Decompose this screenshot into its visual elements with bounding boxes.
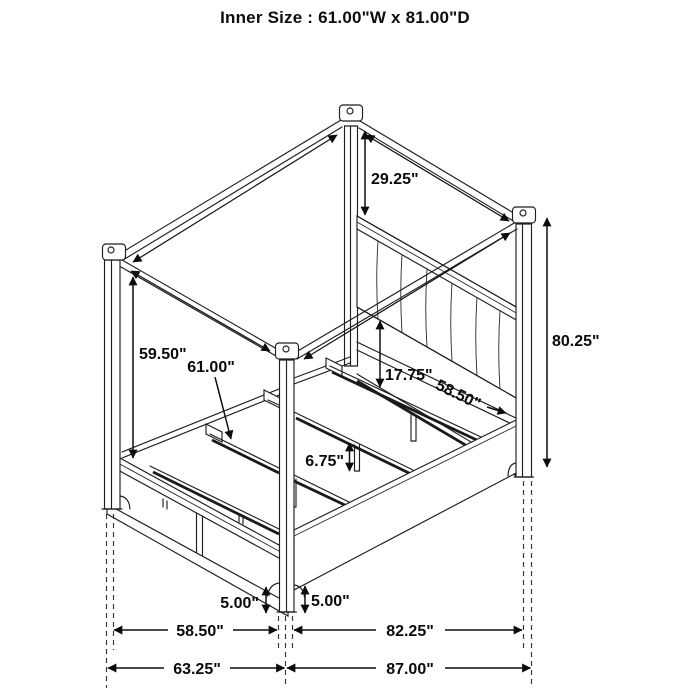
dim-overall-height: 80.25" [547,218,600,467]
dim-label-5-00-right: 5.00" [311,593,350,610]
dim-label-61-00: 61.00" [187,359,235,376]
slat-rail-pad [264,390,280,408]
dim-side-depth-inner: 82.25" [294,623,522,640]
dimension-diagram-page: Inner Size : 61.00"W x 81.00"D [0,0,700,700]
dim-label-29-25: 29.25" [371,171,419,188]
dim-label-58-50-diagonal: 58.50" [433,377,483,413]
dim-label-6-75: 6.75" [305,453,344,470]
bed-line-drawing: 29.25" 80.25" 59.50" 61.00" 17.75" [0,0,700,700]
dim-label-59-50: 59.50" [139,346,187,363]
dim-label-17-75: 17.75" [385,367,433,384]
dim-label-80-25: 80.25" [552,333,600,350]
dim-label-82-25: 82.25" [386,623,434,640]
dim-side-depth-overall: 87.00" [287,661,531,678]
left-side-rail [122,357,350,458]
right-side-rail [294,419,518,590]
footboard [107,451,288,616]
dim-canopy-side-height: 59.50" [133,277,187,458]
dim-label-5-00-left: 5.00" [220,595,259,612]
dim-post-above-headboard: 29.25" [365,131,419,215]
dim-label-87-00: 87.00" [386,661,434,678]
dim-front-width-overall: 63.25" [108,661,285,678]
dim-label-63-25: 63.25" [173,661,221,678]
dim-side-rail-base-height: 5.00" [305,586,350,613]
dim-front-width-inner: 58.50" [114,623,277,640]
dim-label-58-50-bottom: 58.50" [176,623,224,640]
dim-center-leg-height: 6.75" [305,443,349,471]
